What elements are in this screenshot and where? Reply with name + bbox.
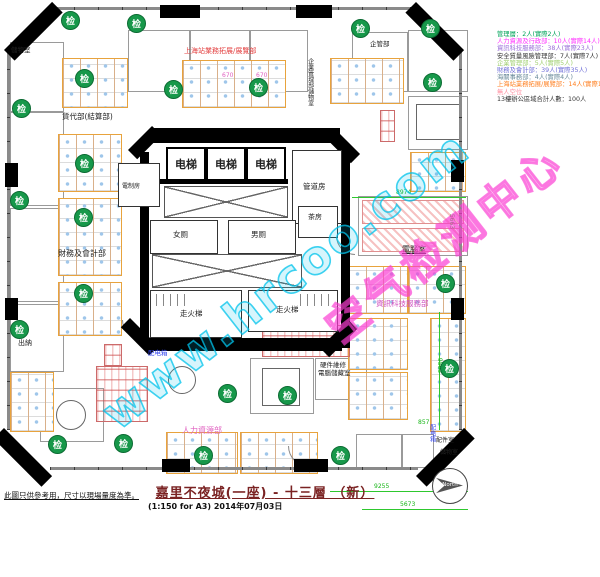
desk-cluster: [182, 60, 286, 108]
label-storage-tl: 儲物室: [11, 47, 31, 54]
inspection-marker: 检: [218, 384, 237, 403]
legend-line: 上海站業務拓展/展覽部：14人(實際10人): [497, 81, 600, 88]
label-corp-dept: 企管部: [370, 41, 390, 48]
title-block: 嘉里不夜城(一座) - 十三層 （新） (1:150 for A3) 2014年…: [130, 482, 400, 512]
inspection-marker: 检: [75, 154, 94, 173]
core-wall-bottom: [150, 338, 342, 351]
inspection-marker: 检: [436, 274, 455, 293]
label-hardware-2: 電腦儲藏室: [318, 370, 351, 377]
inspection-marker: 检: [12, 99, 31, 118]
desk-cluster: [10, 372, 54, 432]
shaft-box: [164, 186, 288, 218]
wall-bottom: [50, 467, 418, 470]
core-wall-right: [341, 152, 350, 348]
wall-top: [50, 7, 418, 10]
legend-line: 資訊科技服務部：38人(實際23人): [497, 45, 600, 52]
desk-cluster: [348, 372, 408, 420]
round-table: [56, 400, 86, 430]
core-wall-top: [150, 128, 340, 143]
inspection-marker: 检: [74, 284, 93, 303]
label-hr-dept: 人力資源部: [182, 427, 222, 436]
column: [5, 298, 18, 320]
disclaimer-note: 此圖只供參考用，尺寸以現場量度為準。: [4, 492, 139, 500]
elevator-label: 电梯: [175, 156, 197, 172]
dim-8974: 8974: [396, 189, 411, 196]
north-label: North: [433, 482, 467, 488]
dim-670: 670: [222, 72, 233, 79]
dim-5673: 5673: [400, 501, 415, 508]
column: [294, 459, 328, 472]
fire-stair-label: 走火梯: [180, 310, 203, 318]
stair-treads: [300, 294, 330, 306]
inspection-marker: 检: [278, 386, 297, 405]
stair-treads: [156, 294, 190, 306]
female-toilet-label: 女厕: [173, 231, 188, 239]
label-shanghai-biz-dept: 上海站業務拓展/展覽部: [184, 48, 256, 56]
label-it-dept: 資訊科技服務部: [376, 300, 429, 308]
inspection-marker: 检: [421, 19, 440, 38]
page-title: 嘉里不夜城(一座) - 十三層 （新）: [130, 482, 400, 501]
fire-stair-label: 走火梯: [276, 306, 299, 314]
inspection-marker: 检: [75, 69, 94, 88]
dim-5663: 5663: [448, 214, 455, 229]
inspection-marker: 检: [61, 11, 80, 30]
round-table: [168, 366, 196, 394]
label-storage-b: 儲物室: [440, 450, 458, 457]
inspection-marker: 检: [249, 78, 268, 97]
inspection-marker: 检: [164, 80, 183, 99]
label-computer-room: 電腦室: [402, 246, 426, 255]
column: [160, 5, 200, 18]
inspection-marker: 检: [331, 446, 350, 465]
side-stair-hatch: [380, 110, 395, 142]
inspection-marker: 检: [423, 73, 442, 92]
inspection-marker: 检: [10, 191, 29, 210]
elevator-label: 电梯: [255, 156, 277, 172]
desk-cluster: [348, 318, 408, 370]
dim-857: 857: [418, 419, 429, 426]
electrical-room-label: 電制房: [122, 184, 140, 191]
column: [5, 163, 18, 187]
wall-right: [459, 50, 462, 430]
staffing-legend: 管理層：2人(實際2人) 人力資源及行政部：10人(實際14人) 資訊科技服務部…: [497, 31, 600, 103]
page-subtitle: (1:150 for A3) 2014年07月03日: [130, 501, 400, 512]
inspection-marker: 检: [194, 446, 213, 465]
tea-room: [298, 206, 338, 238]
elevator-2: 电梯: [206, 147, 246, 181]
storage-rack: [96, 366, 148, 422]
legend-line: 企業管理部：5人(實際5人): [497, 60, 600, 67]
north-compass: North: [432, 468, 468, 504]
column: [162, 459, 190, 472]
room-left-2: [10, 208, 64, 302]
inspection-marker: 检: [440, 359, 459, 378]
inspection-marker: 检: [10, 320, 29, 339]
desk-cluster: [330, 58, 404, 104]
legend-line: 無人空位: [497, 89, 600, 96]
legend-line: 安全質量風險管理部：7人(實際7人): [497, 53, 600, 60]
label-distribution-box: 配电箱: [148, 350, 168, 357]
conference-table: [416, 104, 462, 140]
tea-room-label: 茶房: [308, 214, 322, 222]
label-parts-room: 配件室: [436, 438, 454, 445]
storage-rack-small: [104, 344, 122, 366]
label-cashier: 出納: [18, 340, 32, 348]
label-corp-storage: 企業管理部儲物室: [306, 58, 313, 106]
inspection-marker: 检: [74, 208, 93, 227]
label-finance-dept: 財務及會計部: [58, 250, 106, 259]
inspection-marker: 检: [127, 14, 146, 33]
label-freight-dept: 貨代部(結算部): [62, 113, 113, 121]
legend-line: 13樓辦公區域合計人數：100人: [497, 96, 600, 103]
inspection-marker: 检: [48, 435, 67, 454]
wall-left: [7, 50, 10, 430]
column: [451, 298, 464, 320]
inspection-marker: 检: [114, 434, 133, 453]
elevator-3: 电梯: [246, 147, 286, 181]
small-room: [356, 434, 402, 468]
shaft-box: [152, 254, 302, 288]
pipe-room-label: 管道房: [303, 183, 326, 191]
inspection-marker: 检: [351, 19, 370, 38]
elevator-1: 电梯: [166, 147, 206, 181]
male-toilet-label: 男厕: [251, 231, 266, 239]
desk-cluster: [62, 58, 128, 108]
column: [451, 160, 464, 182]
label-distribution-box: 配电箱: [428, 424, 435, 442]
elevator-label: 电梯: [215, 156, 237, 172]
column: [296, 5, 332, 18]
dim-line: [352, 197, 466, 198]
